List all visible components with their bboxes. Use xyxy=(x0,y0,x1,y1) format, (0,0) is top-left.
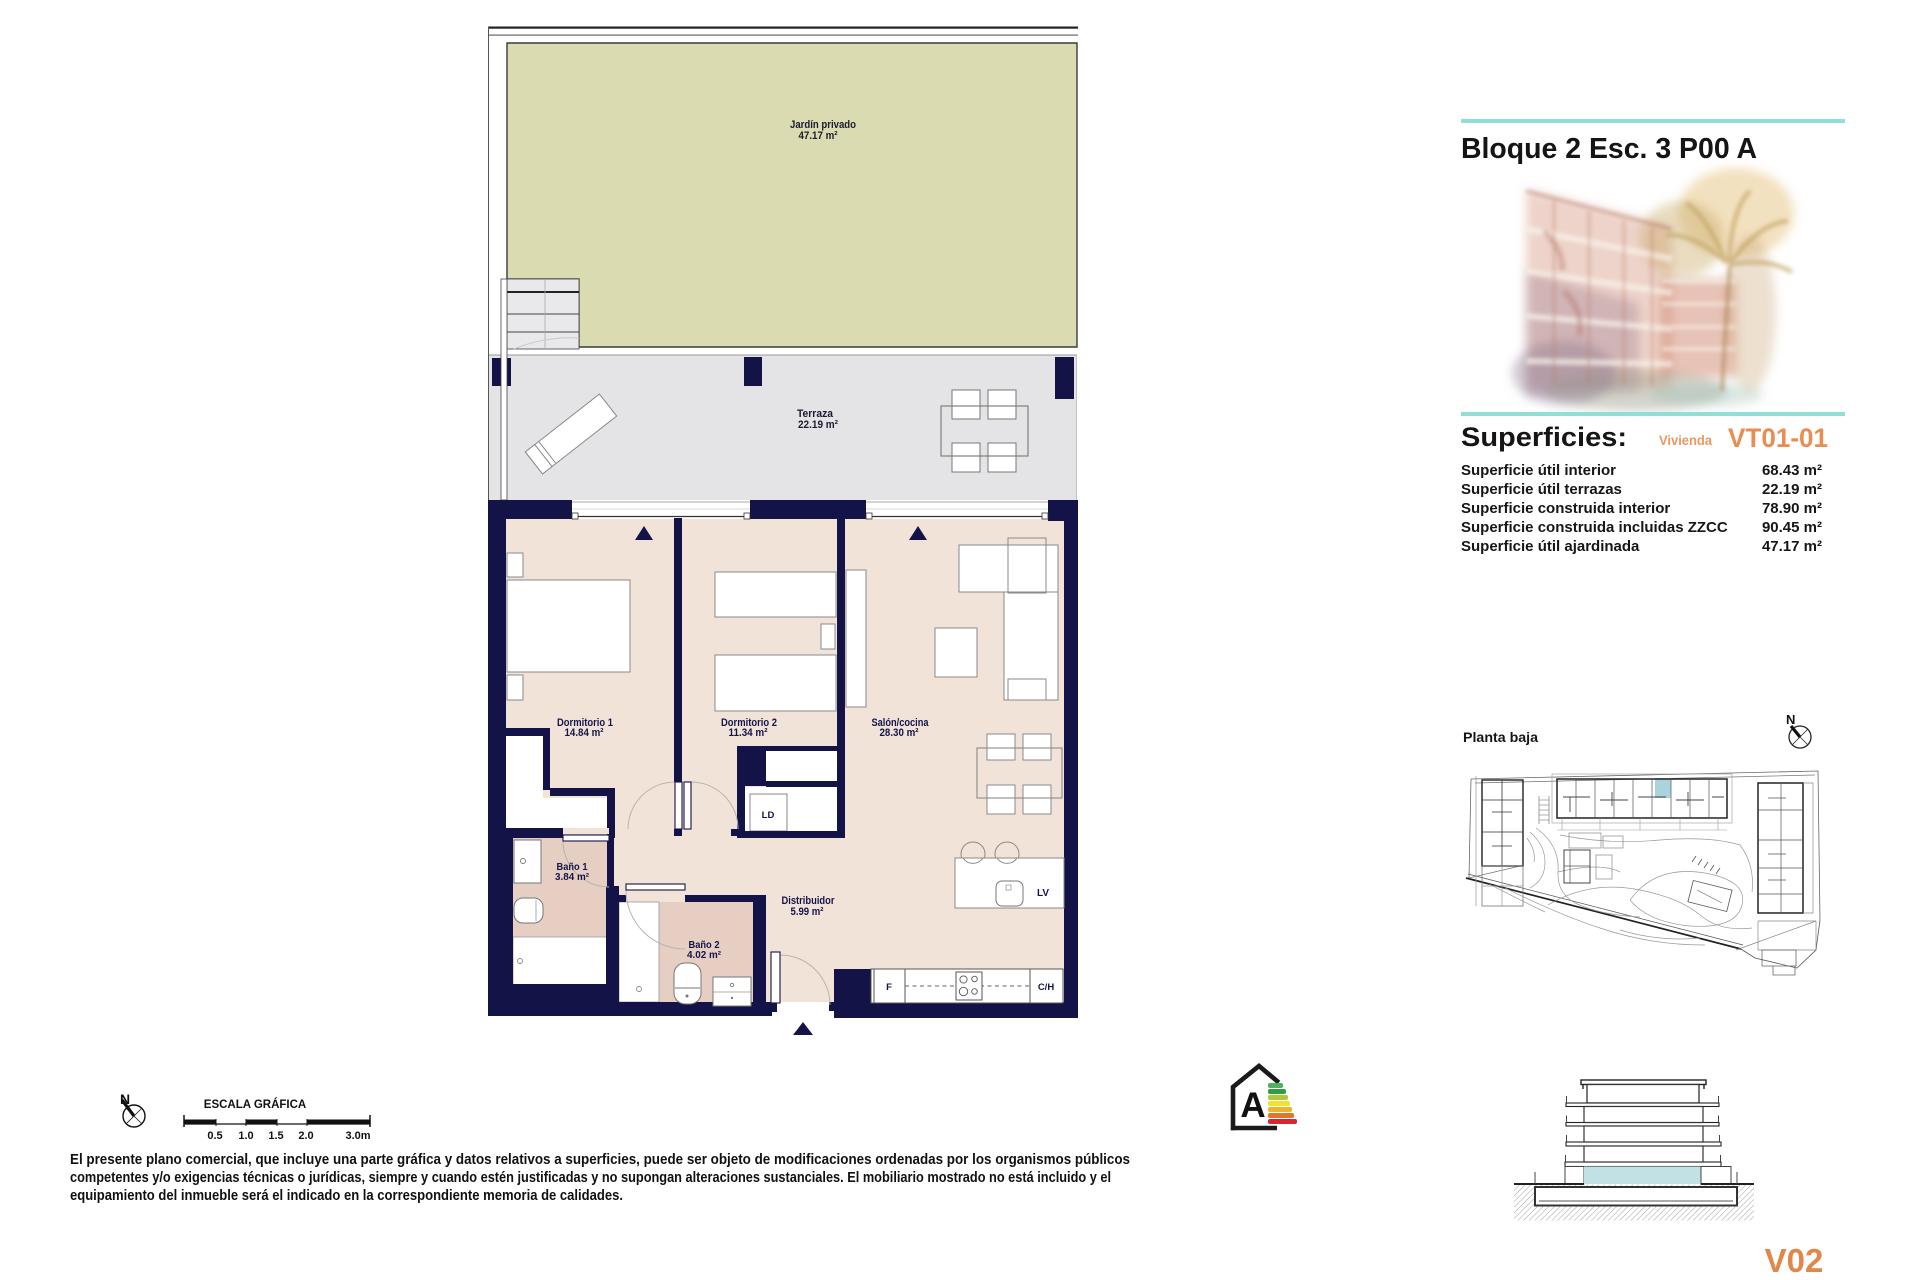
svg-text:Superficies:: Superficies: xyxy=(1461,422,1627,452)
svg-text:LD: LD xyxy=(762,810,775,821)
svg-text:Superficie construida interior: Superficie construida interior xyxy=(1461,500,1670,517)
svg-text:1.0: 1.0 xyxy=(238,1130,253,1142)
svg-text:78.90 m²: 78.90 m² xyxy=(1762,500,1822,517)
svg-text:N: N xyxy=(1786,712,1795,727)
svg-text:47.17 m²: 47.17 m² xyxy=(799,130,838,142)
svg-text:90.45 m²: 90.45 m² xyxy=(1762,519,1822,536)
svg-text:Superficie construida incluida: Superficie construida incluidas ZZCC xyxy=(1461,519,1728,536)
svg-text:1.5: 1.5 xyxy=(268,1130,283,1142)
svg-text:68.43 m²: 68.43 m² xyxy=(1762,462,1822,479)
svg-text:C/H: C/H xyxy=(1038,982,1055,993)
svg-text:5.99 m²: 5.99 m² xyxy=(791,906,824,918)
svg-text:F: F xyxy=(886,982,892,993)
svg-text:Superficie útil terrazas: Superficie útil terrazas xyxy=(1461,481,1622,498)
svg-text:A: A xyxy=(1240,1086,1265,1125)
svg-text:V02: V02 xyxy=(1765,1242,1824,1279)
svg-text:El presente plano comercial, q: El presente plano comercial, que incluye… xyxy=(70,1152,1130,1168)
svg-text:Vivienda: Vivienda xyxy=(1659,432,1712,448)
svg-text:0.5: 0.5 xyxy=(207,1130,222,1142)
svg-text:47.17 m²: 47.17 m² xyxy=(1762,538,1822,555)
svg-text:LV: LV xyxy=(1037,888,1049,899)
svg-text:3.84 m²: 3.84 m² xyxy=(555,871,589,883)
svg-text:28.30 m²: 28.30 m² xyxy=(880,727,919,739)
svg-text:14.84 m²: 14.84 m² xyxy=(565,727,604,739)
svg-text:22.19 m²: 22.19 m² xyxy=(798,419,838,431)
svg-text:Planta baja: Planta baja xyxy=(1463,729,1538,745)
svg-text:equipamiento del inmueble será: equipamiento del inmueble será el indica… xyxy=(70,1188,623,1204)
svg-text:2.0: 2.0 xyxy=(298,1130,313,1142)
svg-text:3.0m: 3.0m xyxy=(345,1130,370,1142)
svg-text:Superficie útil ajardinada: Superficie útil ajardinada xyxy=(1461,538,1640,555)
svg-text:22.19 m²: 22.19 m² xyxy=(1762,481,1822,498)
svg-text:competentes y/o exigencias téc: competentes y/o exigencias técnicas o ju… xyxy=(70,1170,1111,1186)
svg-text:Superficie útil interior: Superficie útil interior xyxy=(1461,462,1616,479)
svg-text:Bloque 2 Esc. 3 P00 A: Bloque 2 Esc. 3 P00 A xyxy=(1461,133,1757,165)
svg-text:ESCALA GRÁFICA: ESCALA GRÁFICA xyxy=(204,1098,306,1111)
svg-text:VT01-01: VT01-01 xyxy=(1728,423,1828,453)
svg-text:11.34 m²: 11.34 m² xyxy=(729,727,768,739)
svg-text:4.02 m²: 4.02 m² xyxy=(687,949,721,961)
